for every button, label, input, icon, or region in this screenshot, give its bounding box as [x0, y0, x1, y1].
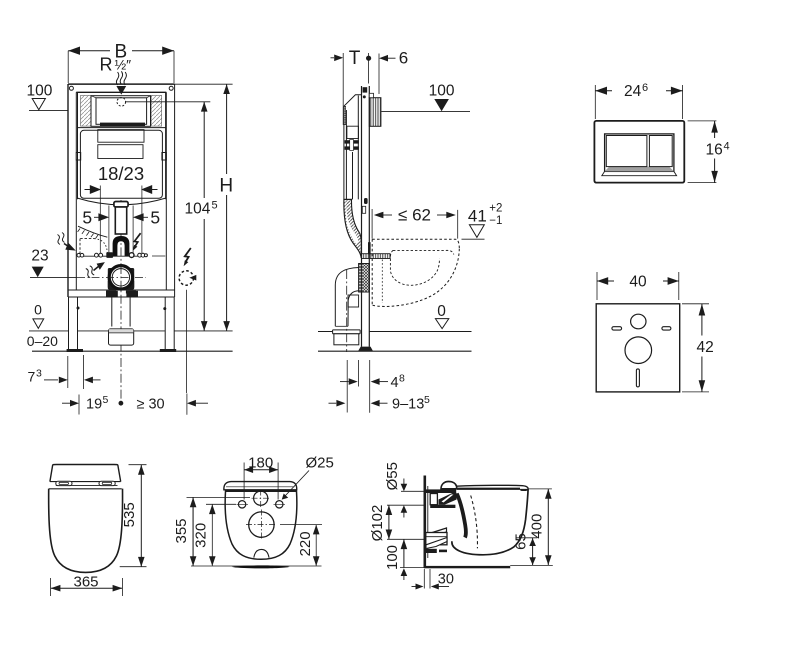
svg-text:100: 100 [26, 83, 52, 100]
svg-text:180: 180 [248, 454, 273, 471]
svg-text:104: 104 [185, 201, 211, 218]
svg-text:Ø55: Ø55 [384, 462, 401, 490]
svg-text:4: 4 [391, 375, 399, 391]
svg-text:5: 5 [103, 394, 109, 406]
svg-text:535: 535 [121, 502, 138, 527]
svg-text:≤ 62: ≤ 62 [398, 206, 431, 225]
svg-text:R: R [100, 55, 113, 75]
svg-text:100: 100 [384, 545, 401, 570]
svg-text:355: 355 [173, 518, 190, 543]
svg-text:0: 0 [437, 303, 446, 320]
svg-text:6: 6 [399, 49, 408, 68]
svg-text:19: 19 [86, 397, 102, 413]
svg-text:0–20: 0–20 [27, 333, 58, 349]
svg-text:8: 8 [399, 373, 405, 385]
svg-text:≥ 30: ≥ 30 [137, 397, 165, 413]
svg-text:18/23: 18/23 [98, 163, 144, 184]
svg-text:9–13: 9–13 [392, 397, 424, 413]
svg-text:4: 4 [724, 141, 730, 153]
svg-text:H: H [219, 176, 233, 197]
svg-text:0: 0 [34, 302, 42, 318]
svg-text:+2: +2 [489, 203, 502, 215]
svg-text:7: 7 [28, 369, 36, 385]
svg-text:100: 100 [429, 83, 455, 100]
svg-text:65: 65 [513, 533, 530, 550]
svg-text:−1: −1 [489, 215, 502, 227]
svg-text:3: 3 [36, 368, 42, 380]
svg-text:42: 42 [697, 339, 714, 356]
svg-text:Ø102: Ø102 [369, 505, 386, 542]
svg-text:41: 41 [468, 207, 487, 226]
svg-text:6: 6 [642, 82, 648, 94]
svg-text:½″: ½″ [115, 57, 132, 73]
svg-text:16: 16 [706, 142, 723, 159]
svg-text:23: 23 [31, 248, 48, 265]
svg-text:30: 30 [438, 572, 454, 588]
svg-text:Ø25: Ø25 [306, 455, 334, 472]
svg-text:5: 5 [212, 200, 218, 212]
svg-text:400: 400 [529, 514, 546, 539]
svg-text:40: 40 [629, 274, 647, 291]
svg-text:5: 5 [150, 208, 160, 228]
svg-text:T: T [349, 48, 361, 69]
svg-text:5: 5 [82, 208, 92, 228]
svg-text:24: 24 [624, 83, 642, 100]
svg-text:5: 5 [424, 394, 430, 406]
svg-text:220: 220 [297, 531, 314, 556]
svg-text:320: 320 [193, 523, 210, 548]
svg-text:365: 365 [73, 573, 98, 590]
